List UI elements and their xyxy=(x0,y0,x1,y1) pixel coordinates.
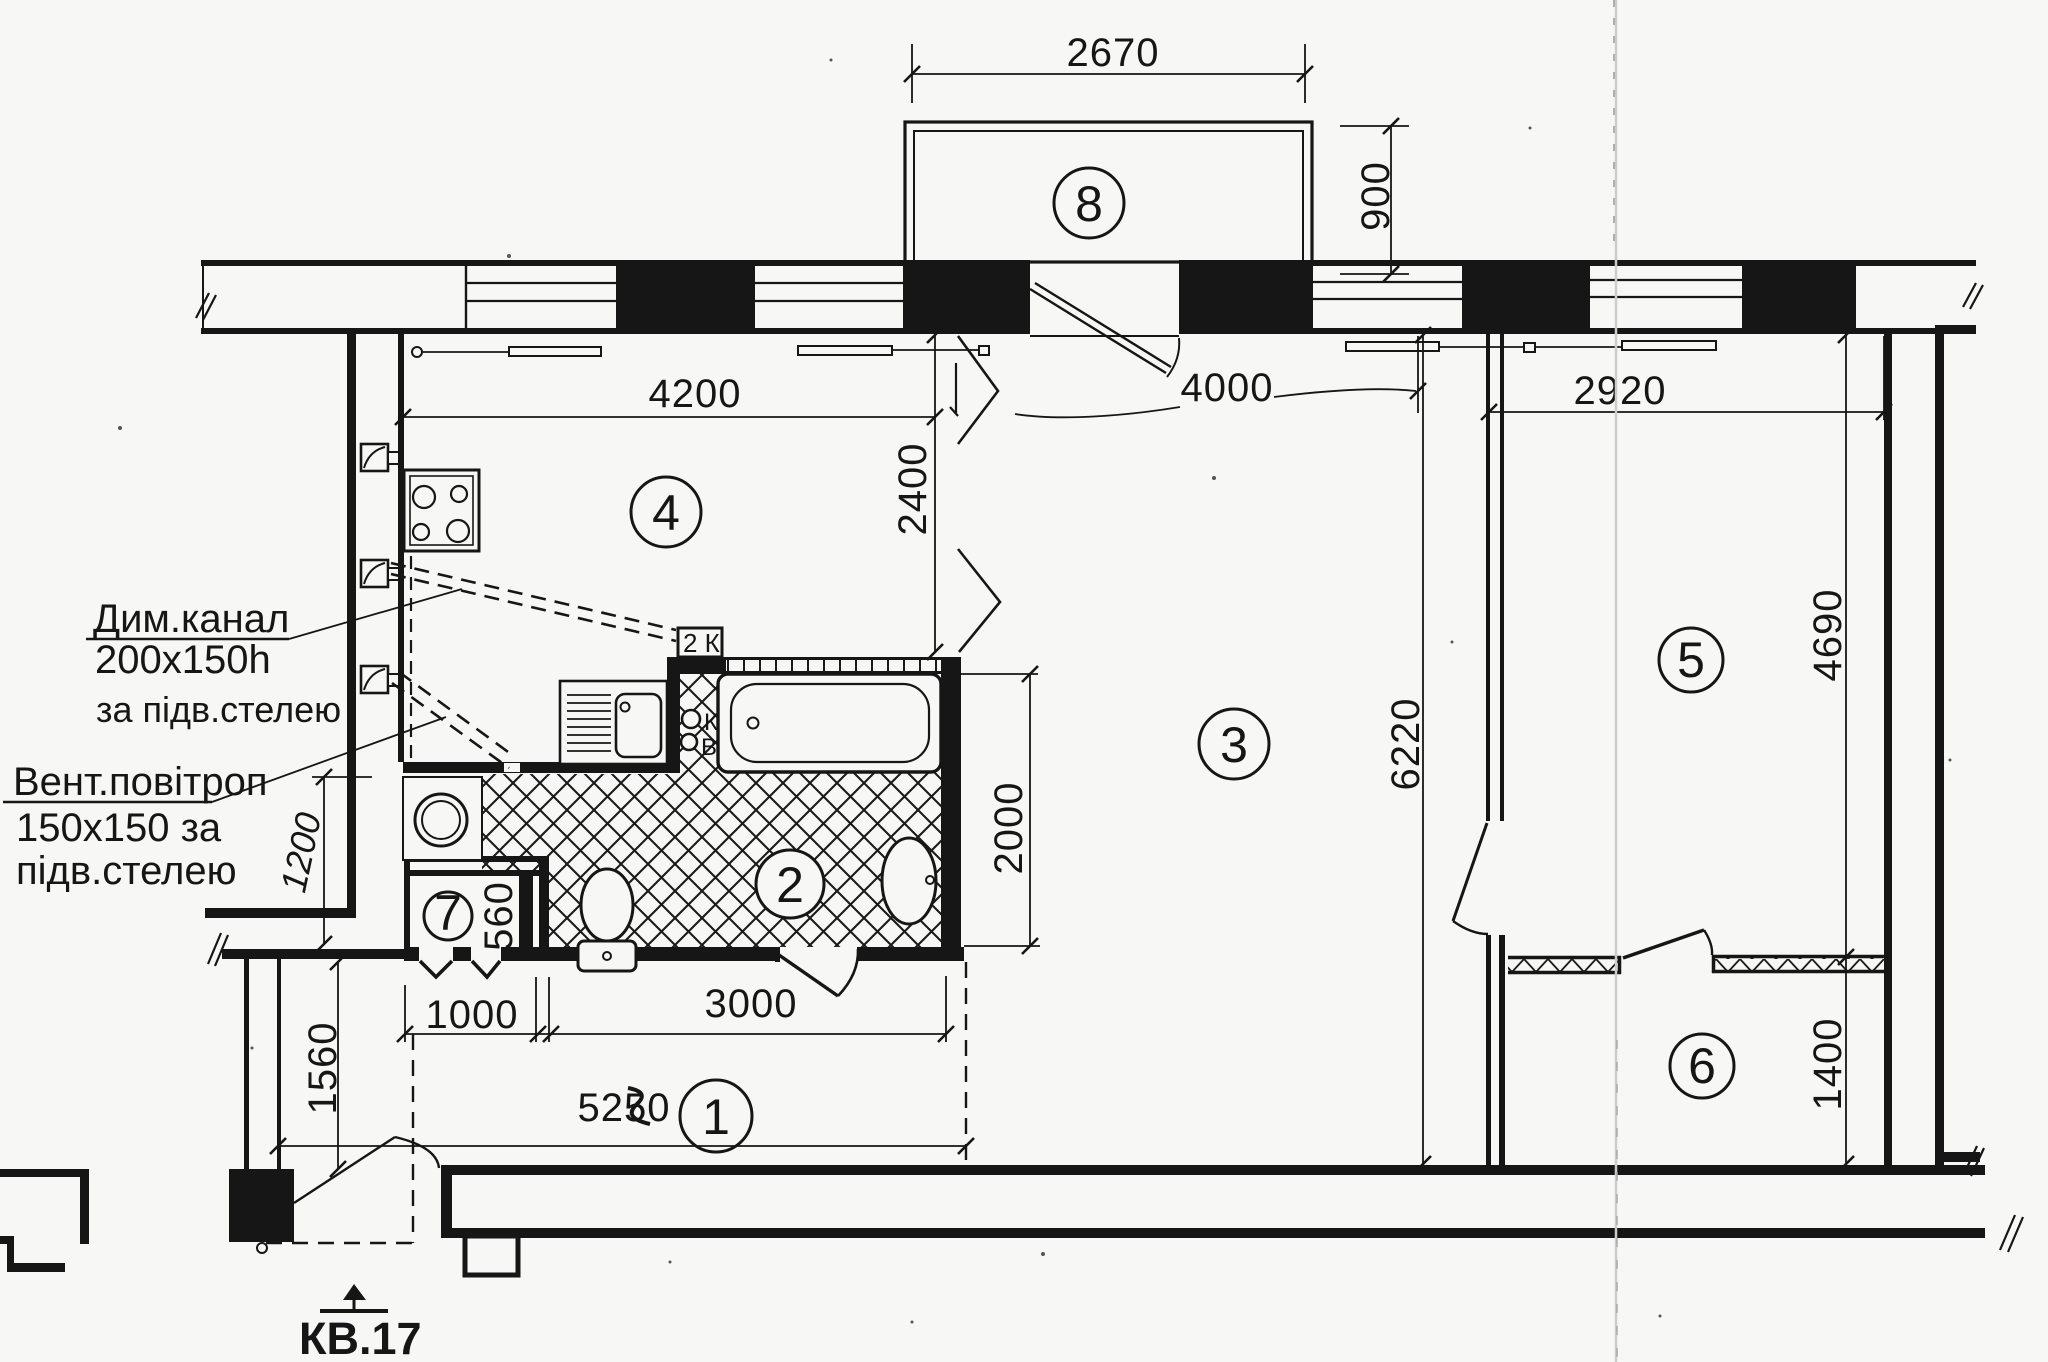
svg-text:Вент.повітроп: Вент.повітроп xyxy=(13,760,268,804)
svg-text:200x150h: 200x150h xyxy=(95,638,271,682)
svg-text:7: 7 xyxy=(434,885,462,941)
svg-text:3: 3 xyxy=(1220,717,1248,773)
svg-text:150x150 за: 150x150 за xyxy=(16,806,222,850)
svg-text:В: В xyxy=(701,734,717,761)
svg-text:2670: 2670 xyxy=(1067,31,1160,75)
svg-text:3000: 3000 xyxy=(705,982,798,1026)
svg-text:8: 8 xyxy=(1075,176,1103,232)
svg-text:1400: 1400 xyxy=(1806,1018,1850,1111)
svg-text:1560: 1560 xyxy=(301,1022,345,1115)
svg-text:4200: 4200 xyxy=(649,372,742,416)
svg-text:5250: 5250 xyxy=(578,1086,671,1130)
svg-text:підв.стелею: підв.стелею xyxy=(16,849,237,893)
svg-text:за підв.стелею: за підв.стелею xyxy=(96,689,341,730)
svg-text:4690: 4690 xyxy=(1806,589,1850,682)
svg-text:2: 2 xyxy=(776,857,804,913)
svg-text:КВ.17: КВ.17 xyxy=(299,1313,422,1362)
svg-text:4: 4 xyxy=(652,485,680,541)
svg-text:К: К xyxy=(704,709,718,736)
svg-text:900: 900 xyxy=(1354,161,1398,231)
svg-text:6: 6 xyxy=(1688,1038,1716,1094)
svg-text:6220: 6220 xyxy=(1384,698,1428,791)
svg-text:2 К: 2 К xyxy=(683,628,720,658)
svg-text:5: 5 xyxy=(1677,632,1705,688)
svg-text:1000: 1000 xyxy=(426,993,519,1037)
svg-text:560: 560 xyxy=(477,881,521,951)
svg-text:2400: 2400 xyxy=(891,443,935,536)
svg-text:1: 1 xyxy=(702,1089,730,1145)
svg-text:2000: 2000 xyxy=(987,782,1031,875)
svg-text:4000: 4000 xyxy=(1181,366,1274,410)
svg-text:2920: 2920 xyxy=(1574,369,1667,413)
svg-text:Дим.канал: Дим.канал xyxy=(93,597,289,641)
